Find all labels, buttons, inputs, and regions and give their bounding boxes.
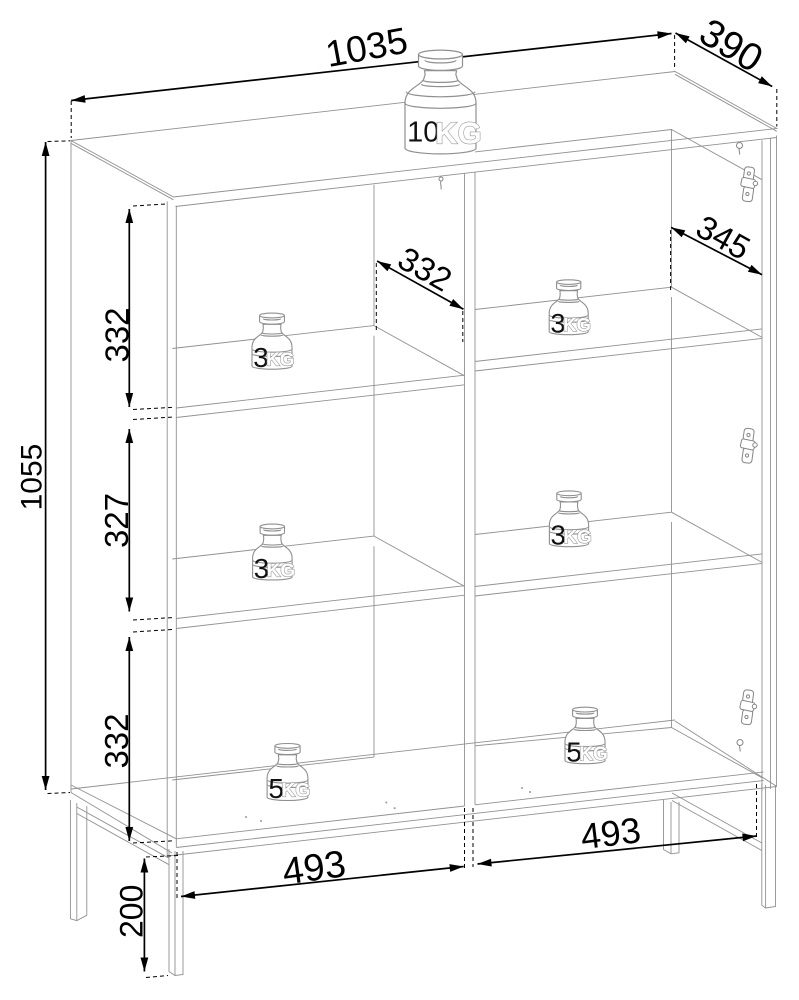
svg-text:493: 493 bbox=[280, 843, 349, 893]
svg-text:332: 332 bbox=[99, 307, 136, 362]
svg-text:KG: KG bbox=[563, 526, 591, 547]
svg-text:200: 200 bbox=[113, 885, 149, 938]
svg-text:KG: KG bbox=[563, 314, 591, 335]
svg-text:KG: KG bbox=[267, 560, 295, 581]
svg-text:KG: KG bbox=[579, 744, 608, 765]
svg-text:327: 327 bbox=[98, 493, 135, 548]
svg-text:1055: 1055 bbox=[15, 444, 48, 511]
svg-text:493: 493 bbox=[578, 809, 643, 857]
svg-text:KG: KG bbox=[435, 116, 481, 151]
svg-text:KG: KG bbox=[281, 781, 310, 802]
svg-text:KG: KG bbox=[266, 349, 294, 370]
svg-text:332: 332 bbox=[98, 713, 135, 768]
